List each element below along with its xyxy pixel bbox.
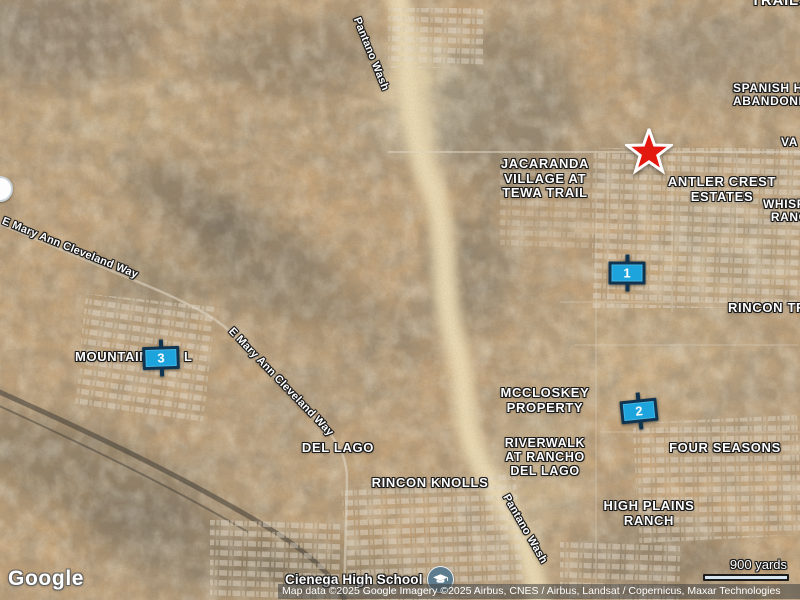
- scale-bar[interactable]: 900 yards: [703, 557, 789, 581]
- place-label-spanish-abandonment: SPANISH HABANDONM: [733, 82, 800, 109]
- sign-marker-2[interactable]: 2: [619, 391, 660, 432]
- sign-number: 3: [142, 346, 180, 370]
- place-label-high-plains-ranch: HIGH PLAINSRANCH: [604, 499, 695, 528]
- place-label-rincon-knolls: RINCON KNOLLS: [372, 476, 489, 491]
- sign-number: 1: [609, 262, 646, 285]
- sign-marker-3[interactable]: 3: [142, 339, 180, 377]
- star-icon: [625, 129, 673, 177]
- scale-rule: [703, 574, 789, 581]
- google-logo[interactable]: Google: [8, 567, 84, 591]
- place-label-mountain-l: L: [184, 350, 193, 365]
- place-label-riverwalk-at-rancho-del-lago: RIVERWALKAT RANCHODEL LAGO: [505, 436, 585, 478]
- place-label-va: VA: [781, 136, 798, 149]
- scale-label: 900 yards: [703, 557, 789, 572]
- place-label-mccloskey-property: MCCLOSKEYPROPERTY: [501, 386, 590, 415]
- place-label-rincon-trails: RINCON TRA: [728, 301, 800, 316]
- sign-number: 2: [619, 398, 658, 425]
- place-label-trails: TRAILS: [751, 0, 800, 10]
- place-label-del-lago: DEL LAGO: [302, 441, 374, 456]
- place-label-mountain: MOUNTAIN: [75, 350, 149, 365]
- map-canvas[interactable]: TRAILSSPANISH HABANDONMVAJACARANDAVILLAG…: [0, 0, 800, 600]
- map-attribution: Map data ©2025 Google Imagery ©2025 Airb…: [278, 584, 800, 599]
- place-label-jacaranda-village: JACARANDAVILLAGE ATTEWA TRAIL: [501, 157, 589, 201]
- star-marker[interactable]: [625, 129, 673, 182]
- sign-marker-1[interactable]: 1: [609, 255, 646, 292]
- place-label-whisper-ranch: WHISPE RANCH: [763, 198, 800, 225]
- place-label-four-seasons: FOUR SEASONS: [669, 441, 781, 456]
- place-label-antler-crest: ANTLER CRESTESTATES: [668, 175, 776, 204]
